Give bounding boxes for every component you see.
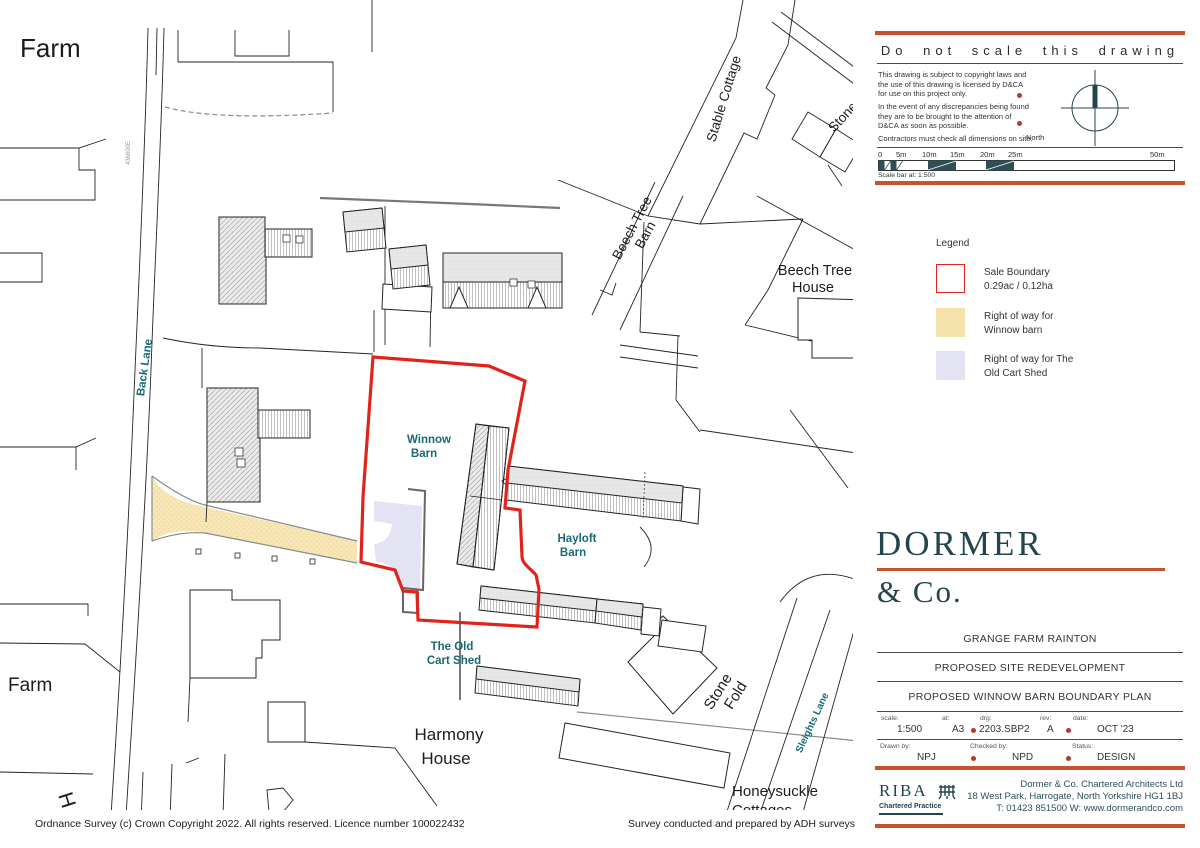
label-winnow-barn-2: Barn: [411, 448, 437, 460]
notes-para-2: In the event of any discrepancies being …: [878, 102, 1030, 131]
scale-tick: 15m: [950, 150, 965, 159]
checked-by-value: NPD: [1012, 752, 1033, 763]
site-plan-map: Farm Farm H 436600E Back Lane Stable Cot…: [0, 0, 870, 848]
firm-logo-rule: [877, 568, 1165, 571]
notes-divider-1: [877, 63, 1183, 64]
label-cart-shed-2: Cart Shed: [427, 655, 481, 667]
label-farm-top: Farm: [20, 33, 81, 63]
label-beech-tree-house-1: Beech Tree: [778, 263, 852, 279]
firm-contact: T: 01423 851500 W: www.dormerandco.com: [996, 803, 1183, 814]
riba-subtitle: Chartered Practice: [879, 803, 941, 810]
checked-by-label: Checked by:: [970, 743, 1008, 750]
drawing-title: PROPOSED WINNOW BARN BOUNDARY PLAN: [875, 691, 1185, 703]
label-beech-tree-barn: Beech Tree Barn: [609, 194, 668, 269]
red-dot: [1066, 756, 1071, 761]
scale-tick: 5m: [896, 150, 906, 159]
label-cart-shed-1: The Old: [431, 641, 474, 653]
scale-label: scale:: [881, 715, 899, 722]
label-grid-ref: 436600E: [126, 141, 132, 165]
drawn-by-value: NPJ: [917, 752, 936, 763]
titleblock-separator: [877, 739, 1183, 740]
notes-title: Do not scale this drawing: [875, 43, 1185, 58]
firm-top-rule: [875, 766, 1185, 770]
north-compass-icon: [1055, 64, 1135, 148]
rev-value: A: [1047, 724, 1054, 735]
notes-bottom-rule: [875, 181, 1185, 185]
scheme-title: PROPOSED SITE REDEVELOPMENT: [875, 662, 1185, 674]
drg-value: 2203.SBP2: [979, 724, 1030, 735]
scale-tick: 50m: [1150, 150, 1165, 159]
at-label: at:: [942, 715, 950, 722]
parcel-lines: [0, 0, 870, 848]
scale-tick: 10m: [922, 150, 937, 159]
status-label: Status:: [1072, 743, 1093, 750]
notes-top-rule: [875, 31, 1185, 35]
titleblock-separator: [877, 711, 1183, 712]
date-label: date:: [1073, 715, 1088, 722]
label-stable-cottage: Stable Cottage: [703, 54, 743, 144]
label-back-lane: Back Lane: [135, 338, 155, 397]
scale-value: 1:500: [897, 724, 922, 735]
at-value: A3: [952, 724, 964, 735]
firm-logo-sub: & Co.: [877, 574, 963, 610]
label-harmony-1: Harmony: [415, 725, 484, 744]
firm-address: 18 West Park, Harrogate, North Yorkshire…: [967, 791, 1183, 802]
project-title: GRANGE FARM RAINTON: [875, 633, 1185, 645]
status-value: DESIGN: [1097, 752, 1135, 763]
red-dot: [1017, 121, 1022, 126]
firm-logo-name: DORMER: [876, 524, 1044, 564]
label-winnow-barn-1: Winnow: [407, 434, 451, 446]
legend-item-row-cart-shed: Right of way for The Old Cart Shed: [984, 353, 1073, 380]
legend-item-row-winnow: Right of way for Winnow barn: [984, 310, 1053, 337]
scale-tick: 25m: [1008, 150, 1023, 159]
red-dot: [971, 756, 976, 761]
drawing-sheet: { "map": { "labels": { "farm_top": "Farm…: [0, 0, 1200, 848]
label-sleights-lane: Sleights Lane: [794, 691, 832, 755]
drg-label: drg:: [980, 715, 992, 722]
red-dot: [1017, 93, 1022, 98]
legend-swatch-row-cart-shed: [936, 351, 965, 380]
firm-name: Dormer & Co. Chartered Architects Ltd: [1020, 779, 1183, 790]
notes-divider-2: [877, 147, 1183, 148]
label-beech-tree-house-2: House: [792, 280, 834, 296]
riba-crest-icon: [938, 783, 956, 800]
map-right-margin: [853, 0, 870, 848]
legend-title: Legend: [936, 238, 969, 249]
rev-label: rev:: [1040, 715, 1051, 722]
titleblock-separator: [877, 681, 1183, 682]
drawn-by-label: Drawn by:: [880, 743, 911, 750]
legend-item-sale-boundary: Sale Boundary 0.29ac / 0.12ha: [984, 266, 1053, 293]
scale-tick: 20m: [980, 150, 995, 159]
label-harmony-2: House: [421, 749, 470, 768]
notes-para-3: Contractors must check all dimensions on…: [878, 134, 1078, 144]
riba-rule: [879, 813, 943, 815]
titleblock-separator: [877, 652, 1183, 653]
legend-swatch-row-winnow: [936, 308, 965, 337]
label-honeysuckle-1: Honeysuckle: [732, 783, 818, 800]
label-hayloft-barn-1: Hayloft: [558, 533, 597, 545]
label-hayloft-barn-2: Barn: [560, 547, 586, 559]
scale-bar-caption: Scale bar at: 1:500: [878, 172, 935, 179]
label-h-partial: H: [53, 789, 80, 811]
red-dot: [1066, 728, 1071, 733]
sheet-bottom-rule: [875, 824, 1185, 828]
date-value: OCT '23: [1097, 724, 1134, 735]
north-label: North: [1026, 133, 1044, 142]
label-farm-bottom: Farm: [8, 675, 52, 696]
red-dot: [971, 728, 976, 733]
survey-credit: Survey conducted and prepared by ADH sur…: [628, 818, 855, 830]
legend-swatch-sale-boundary: [936, 264, 965, 293]
os-copyright: Ordnance Survey (c) Crown Copyright 2022…: [35, 818, 465, 830]
riba-logo-text: RIBA: [879, 781, 928, 801]
notes-para-1: This drawing is subject to copyright law…: [878, 70, 1030, 99]
scale-tick: 0: [878, 150, 882, 159]
